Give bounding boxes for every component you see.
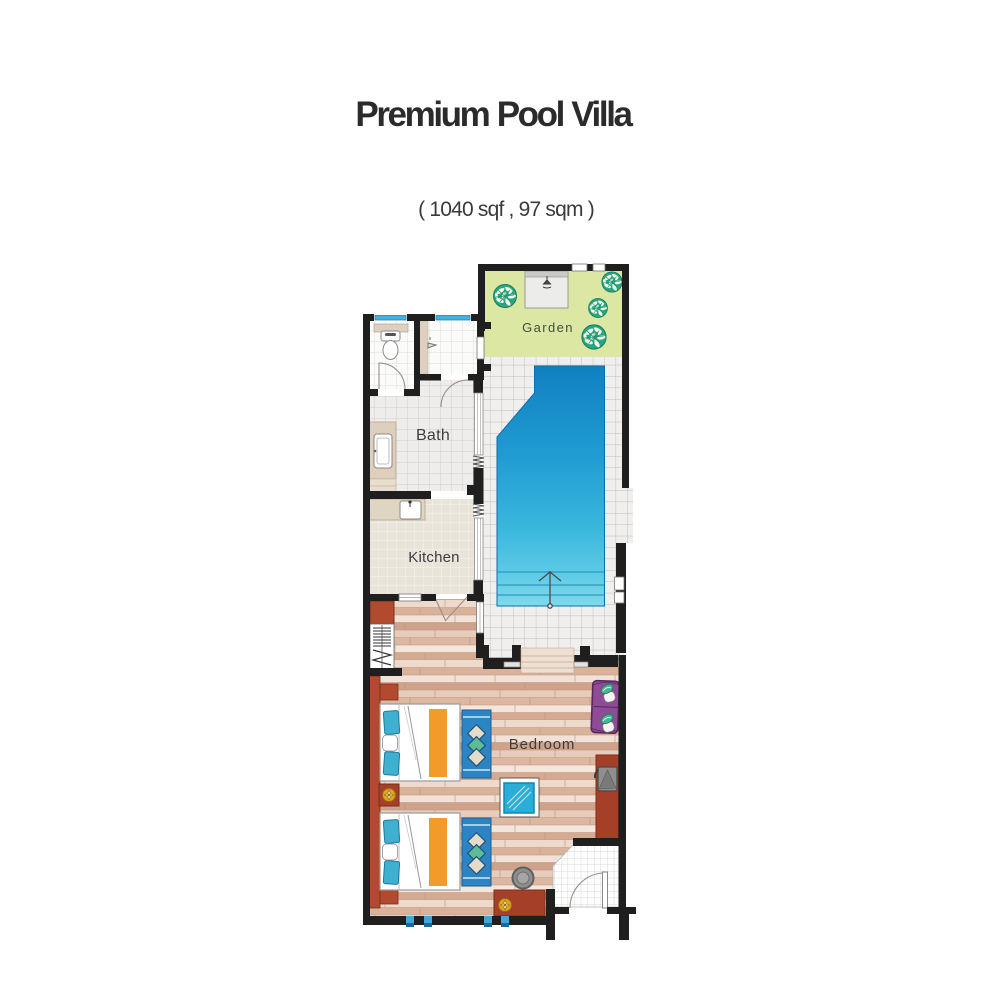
svg-text:( 1040 sqf , 97 sqm ): ( 1040 sqf , 97 sqm ) [418,198,594,221]
svg-text:Premium Pool Villa: Premium Pool Villa [355,95,633,134]
svg-text:Kitchen: Kitchen [408,549,459,566]
svg-text:Bath: Bath [416,427,450,444]
svg-text:Garden: Garden [522,320,574,335]
svg-text:Bedroom: Bedroom [509,736,575,753]
